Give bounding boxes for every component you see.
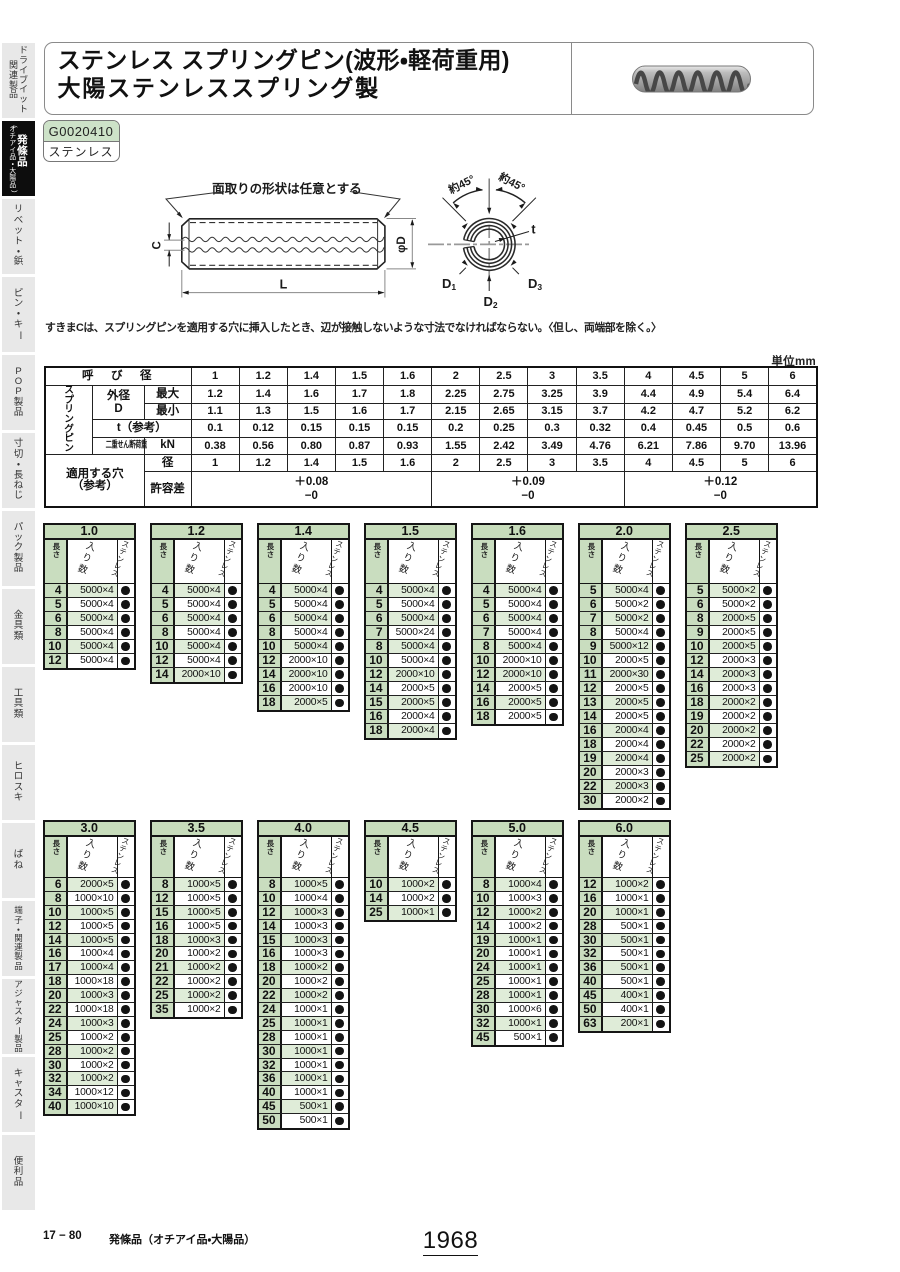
svg-text:D1: D1	[442, 276, 456, 292]
svg-text:t: t	[531, 223, 536, 237]
svg-text:L: L	[280, 278, 288, 292]
svg-text:C: C	[152, 241, 164, 249]
svg-text:面取りの形状は任意とする: 面取りの形状は任意とする	[212, 181, 362, 196]
svg-text:D2: D2	[483, 294, 497, 310]
svg-text:約45°: 約45°	[445, 171, 477, 196]
svg-text:φD: φD	[396, 236, 408, 253]
svg-text:D3: D3	[528, 276, 542, 292]
